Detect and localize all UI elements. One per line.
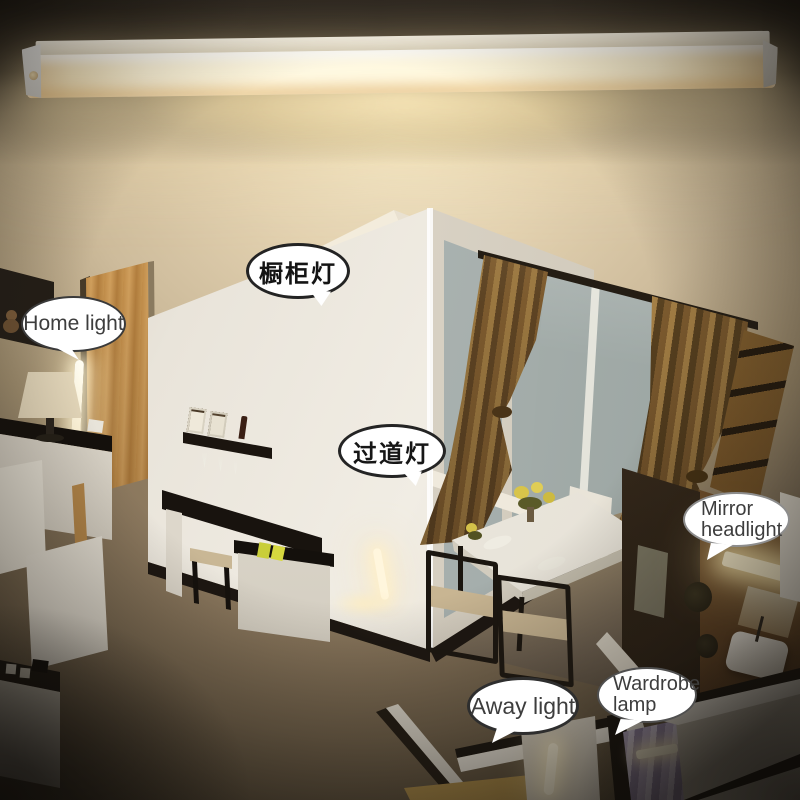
callout-wardrobe-line1: Wardrobe — [613, 673, 700, 695]
picture-frame — [186, 407, 206, 434]
yellow-book — [257, 542, 271, 559]
product-photo-stage: 橱柜灯 Home light 过道灯 Mirror headlight Away… — [0, 0, 800, 800]
callout-mirror-line2: headlight — [701, 519, 782, 541]
vanity-plant-2 — [696, 634, 718, 658]
dining-chair-b — [496, 574, 574, 687]
vanity-plant — [684, 582, 712, 612]
chair-seat-2 — [502, 610, 567, 640]
callout-aisle-light: 过道灯 — [338, 424, 446, 478]
callout-wardrobe-lamp: Wardrobe lamp — [597, 667, 697, 723]
callout-mirror-headlight: Mirror headlight — [683, 492, 790, 547]
led-light-bar — [24, 31, 777, 103]
flower-vase — [527, 507, 534, 522]
teddy-bear-body — [3, 319, 19, 333]
callout-wardrobe-lamp-label: Wardrobe lamp — [613, 674, 700, 716]
counter-item — [87, 419, 104, 433]
callout-cabinet-light: 橱柜灯 — [246, 243, 350, 299]
callout-mirror-headlight-label: Mirror headlight — [701, 499, 782, 541]
led-bar-diffuser — [27, 45, 776, 98]
cabinet-item-dark — [31, 659, 49, 673]
flower-yellow-2 — [531, 482, 543, 493]
callout-home-light-label: Home light — [23, 312, 123, 336]
cabinet-item-cup-2 — [20, 668, 31, 679]
chair-seat — [431, 586, 493, 618]
callout-away-light: Away light — [467, 677, 579, 735]
dining-chair-a — [426, 550, 498, 665]
curtain-tie-left — [492, 406, 512, 418]
callout-away-light-label: Away light — [471, 693, 575, 720]
aisle-floor-glow — [330, 590, 396, 618]
callout-home-light: Home light — [21, 296, 126, 352]
callout-wardrobe-line2: lamp — [613, 694, 656, 716]
led-bar-endcap-right — [763, 40, 779, 88]
callout-aisle-light-label: 过道灯 — [353, 434, 431, 469]
curtain-tie-right — [686, 470, 708, 483]
callout-cabinet-light-label: 橱柜灯 — [259, 254, 337, 289]
flower-yellow-3 — [543, 492, 555, 503]
picture-frame-2 — [207, 411, 227, 438]
bubble-tail — [49, 344, 79, 360]
cabinet-item-cup — [6, 664, 17, 675]
callout-mirror-line1: Mirror — [701, 498, 753, 520]
motion-sensor-icon — [29, 71, 38, 80]
table-lamp-base — [36, 434, 64, 442]
flower-small-greens — [468, 531, 482, 540]
